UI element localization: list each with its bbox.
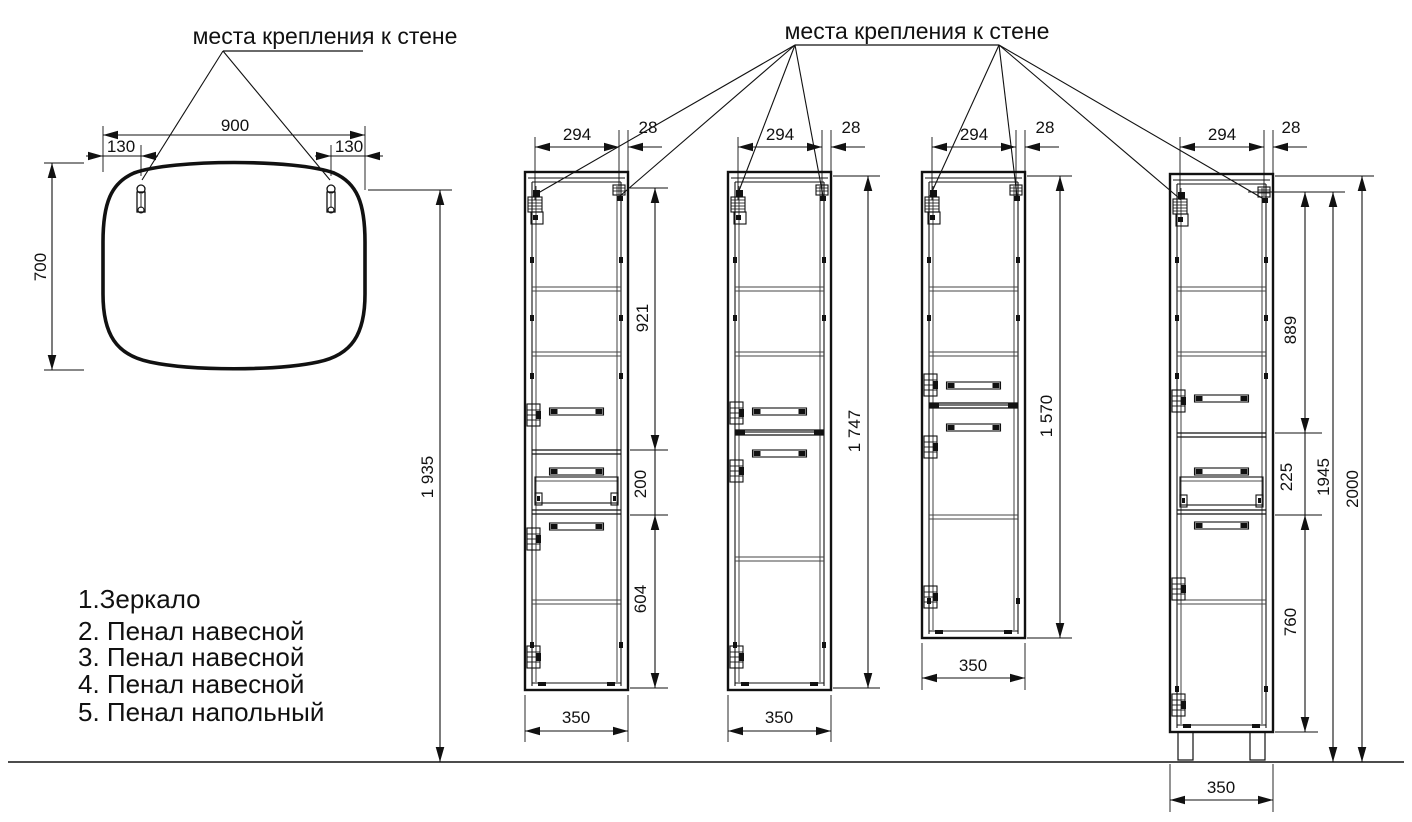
mirror-mount-leader-lines [142, 51, 363, 180]
technical-drawing-page: места крепления к стене места крепления … [0, 0, 1412, 822]
dim-cab4-bottom-width: 350 [959, 656, 987, 675]
dim-cab5-upper: 889 [1281, 316, 1300, 344]
legend: 1.Зеркало 2. Пенал навесной 3. Пенал нав… [78, 584, 324, 727]
dim-mirror-width: 900 [221, 116, 249, 135]
dim-mirror-offset-right: 130 [335, 137, 363, 156]
dim-cab5-lower: 760 [1281, 608, 1300, 636]
cabinet-2-dimension-lines [525, 130, 668, 742]
dim-cab3-top-width: 294 [766, 125, 794, 144]
cabinet-3-body [728, 172, 831, 690]
dim-cab3-depth: 28 [842, 118, 861, 137]
dim-cab4-top-width: 294 [960, 125, 988, 144]
legend-item-cabinet3: 3. Пенал навесной [78, 642, 304, 672]
dim-cab5-top-width: 294 [1208, 125, 1236, 144]
legend-item-cabinet4: 4. Пенал навесной [78, 669, 304, 699]
dim-cab3-height: 1 747 [845, 410, 864, 453]
dim-cab4-height: 1 570 [1037, 395, 1056, 438]
mirror-mount-title: места крепления к стене [193, 23, 458, 49]
dim-cab5-depth: 28 [1282, 118, 1301, 137]
dim-cab2-top-width: 294 [563, 125, 591, 144]
dim-cab2-bottom-width: 350 [562, 708, 590, 727]
dim-mirror-hook-height: 1 935 [418, 456, 437, 499]
cabinet-mount-title: места крепления к стене [785, 18, 1050, 44]
dim-cab5-bottom-width: 350 [1207, 778, 1235, 797]
dim-mirror-height: 700 [31, 253, 50, 281]
dim-cab2-upper: 921 [633, 304, 652, 332]
dim-cab2-drawer: 200 [631, 470, 650, 498]
cabinet-5-body [1170, 174, 1273, 760]
legend-item-mirror: 1.Зеркало [78, 584, 201, 614]
legend-item-cabinet5: 5. Пенал напольный [78, 697, 324, 727]
mirror-outline-group [103, 163, 365, 369]
dim-cab4-depth: 28 [1036, 118, 1055, 137]
cabinet-4-body [922, 172, 1025, 638]
dim-cab5-body-height: 1945 [1314, 458, 1333, 496]
dim-mirror-offset-left: 130 [107, 137, 135, 156]
cabinet-2-body [525, 172, 628, 690]
dim-cab2-lower: 604 [631, 585, 650, 613]
dim-cab5-total-height: 2000 [1343, 470, 1362, 508]
furniture-dimension-drawing: места крепления к стене места крепления … [0, 0, 1412, 822]
dim-cab5-drawer: 225 [1277, 463, 1296, 491]
dim-cab3-bottom-width: 350 [765, 708, 793, 727]
dim-cab2-depth: 28 [639, 118, 658, 137]
